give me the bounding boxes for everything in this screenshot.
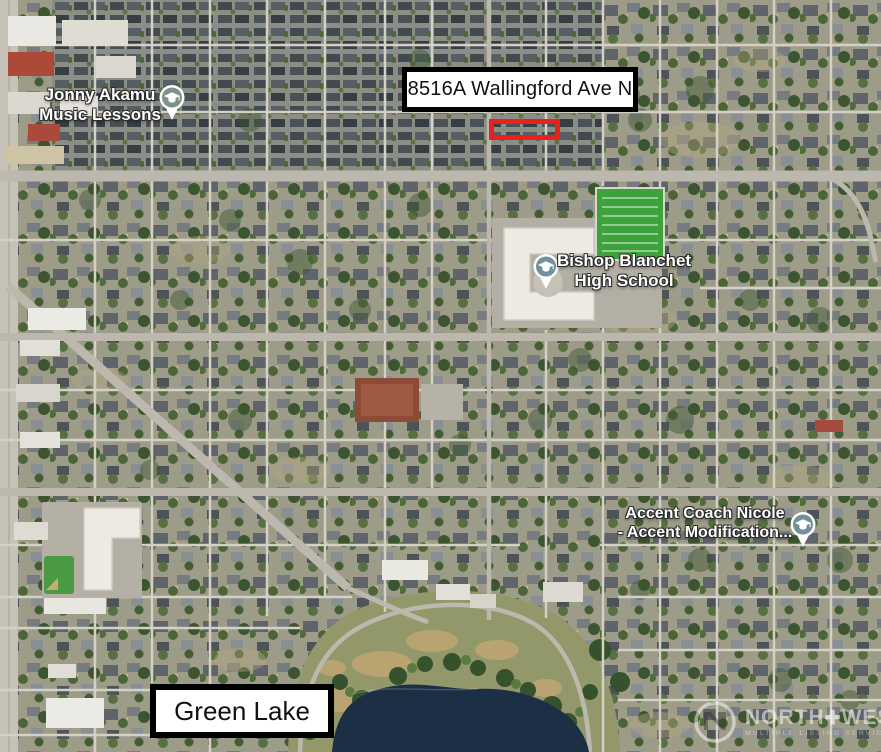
- poi-label-accent-coach: Accent Coach Nicole - Accent Modificatio…: [618, 505, 793, 542]
- poi-label-line: Jonny Akamu: [39, 85, 161, 105]
- poi-label-bishop-blanchet: Bishop Blanchet High School: [557, 251, 691, 290]
- nwmls-logo-icon: [692, 699, 738, 745]
- watermark-compass-plus-icon: ✚: [825, 708, 842, 729]
- elementary-school-campus: [42, 502, 142, 598]
- address-callout: 8516A Wallingford Ave N: [402, 67, 638, 112]
- watermark-brand-left: NORTH: [745, 706, 825, 729]
- watermark-brand-right: WEST: [842, 706, 881, 729]
- poi-label-line: - Accent Modification...: [618, 524, 793, 543]
- football-field: [596, 188, 664, 260]
- poi-label-line: Music Lessons: [39, 105, 161, 125]
- lake-callout-text: Green Lake: [174, 696, 310, 727]
- school-pin-jonny-akamu: [157, 83, 187, 121]
- poi-label-jonny-akamu: Jonny Akamu Music Lessons: [39, 85, 161, 124]
- watermark-tagline: MULTIPLE LISTING SERVICE: [745, 730, 881, 737]
- address-callout-text: 8516A Wallingford Ave N: [408, 78, 633, 101]
- poi-label-line: High School: [557, 271, 691, 291]
- nwmls-watermark: NORTH✚WEST MULTIPLE LISTING SERVICE: [692, 699, 881, 745]
- poi-label-line: Bishop Blanchet: [557, 251, 691, 271]
- aerial-map-photo: Jonny Akamu Music Lessons Bishop Blanche…: [0, 0, 881, 752]
- property-highlight-box: [489, 119, 560, 140]
- lake-callout: Green Lake: [150, 684, 334, 738]
- nwmls-watermark-text: NORTH✚WEST MULTIPLE LISTING SERVICE: [745, 707, 881, 737]
- poi-label-line: Accent Coach Nicole: [618, 505, 793, 524]
